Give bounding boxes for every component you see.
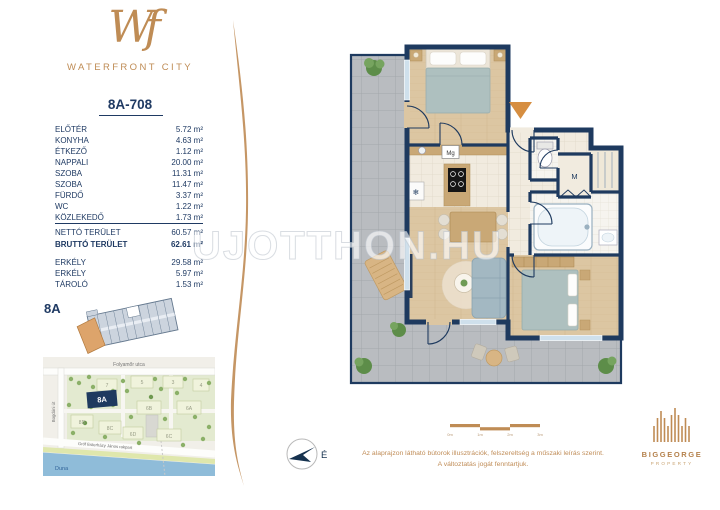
map-street-left-label: Bogdáni út — [51, 401, 56, 422]
room-name: KÖZLEKEDŐ — [55, 212, 104, 223]
extras-table: ERKÉLY29.58 m² ERKÉLY5.97 m² TÁROLÓ1.53 … — [55, 257, 203, 290]
table-row: SZOBA11.31 m² — [55, 168, 203, 179]
scale-labels: 0m 1m 2m 3m — [447, 432, 543, 437]
table-row: KÖZLEKEDŐ1.73 m² — [55, 212, 203, 223]
room-area-table: ELŐTÉR5.72 m² KONYHA4.63 m² ÉTKEZŐ1.12 m… — [55, 124, 203, 223]
toilet — [537, 142, 553, 149]
room-name: SZOBA — [55, 168, 82, 179]
disclaimer-line1: Az alaprajzon látható bútorok illusztrác… — [347, 449, 619, 460]
publisher-name: BIGGEORGE — [630, 450, 714, 459]
total-name: BRUTTÓ TERÜLET — [55, 239, 127, 251]
table-row: BRUTTÓ TERÜLET62.61 m² — [55, 239, 203, 251]
room-name: FÜRDŐ — [55, 190, 83, 201]
map-road-left — [58, 368, 64, 448]
entrance-arrow — [509, 102, 532, 119]
room-area: 1.22 m² — [176, 201, 203, 212]
keyplan-unit-label: 8A — [44, 301, 61, 316]
table-row: ERKÉLY29.58 m² — [55, 257, 203, 268]
floor-plan: Mg M ❄ — [344, 42, 626, 390]
svg-text:6C: 6C — [166, 434, 173, 440]
table-row: ÉTKEZŐ1.12 m² — [55, 146, 203, 157]
totals-table: NETTÓ TERÜLET60.57 m² BRUTTÓ TERÜLET62.6… — [55, 227, 203, 250]
svg-text:3: 3 — [172, 380, 175, 386]
map-street-top-label: Folyamőr utca — [113, 362, 145, 368]
building-keyplan — [74, 289, 192, 359]
svg-text:7: 7 — [106, 383, 109, 389]
svg-text:3m: 3m — [537, 432, 543, 437]
svg-text:5: 5 — [141, 380, 144, 386]
svg-text:6A: 6A — [186, 406, 193, 412]
map-parking — [146, 415, 158, 437]
builtin-wardrobe-floor — [591, 148, 621, 192]
extra-name: ERKÉLY — [55, 268, 86, 279]
disclaimer-line2: A változtatás jogát fenntartjuk. — [347, 460, 619, 471]
room-area: 11.47 m² — [172, 179, 203, 190]
table-row: ELŐTÉR5.72 m² — [55, 124, 203, 135]
wardrobe-label: M — [571, 172, 577, 181]
table-row: SZOBA11.47 m² — [55, 179, 203, 190]
unit-id: 8A-708 — [55, 97, 205, 112]
svg-text:6D: 6D — [130, 432, 137, 438]
room-name: ÉTKEZŐ — [55, 146, 87, 157]
north-label: É — [321, 450, 327, 461]
table-row: FÜRDŐ3.37 m² — [55, 190, 203, 201]
map-road-top — [43, 368, 215, 375]
kitchen-sink — [419, 147, 426, 154]
svg-text:1m: 1m — [477, 432, 483, 437]
north-compass: É — [284, 436, 334, 472]
room-name: WC — [55, 201, 68, 212]
fridge-icon: ❄ — [413, 188, 420, 197]
disclaimer: Az alaprajzon látható bútorok illusztrác… — [347, 449, 619, 470]
washing-machine-label: Mg — [446, 151, 454, 157]
keyplan-notch — [126, 306, 140, 318]
map-highlight-building: 8A — [86, 390, 117, 409]
map-river-label: Duna — [55, 466, 69, 472]
room-area: 1.73 m² — [176, 212, 203, 223]
brochure-page: Wf WATERFRONT CITY 8A-708 ELŐTÉR5.72 m² … — [0, 0, 720, 510]
svg-text:2m: 2m — [507, 432, 513, 437]
publisher-subtitle: PROPERTY — [630, 461, 714, 466]
publisher-towers-icon — [648, 402, 696, 444]
entry-door-opening — [510, 127, 534, 132]
room-area: 1.12 m² — [176, 146, 203, 157]
svg-text:4: 4 — [200, 383, 203, 389]
table-separator — [55, 223, 203, 224]
publisher-logo: BIGGEORGE PROPERTY — [630, 402, 714, 466]
svg-text:8C: 8C — [107, 426, 114, 432]
total-name: NETTÓ TERÜLET — [55, 227, 121, 239]
svg-text:8A: 8A — [97, 395, 108, 405]
room-name: KONYHA — [55, 135, 89, 146]
terrace-table — [486, 350, 502, 366]
room-area: 3.37 m² — [176, 190, 203, 201]
room-area: 4.63 m² — [176, 135, 203, 146]
table-row: NETTÓ TERÜLET60.57 m² — [55, 227, 203, 239]
room-name: SZOBA — [55, 179, 82, 190]
room-area: 5.72 m² — [176, 124, 203, 135]
unit-id-underline — [99, 115, 163, 116]
room-area: 11.31 m² — [172, 168, 203, 179]
terrace-door-opening — [426, 319, 452, 325]
room-area: 20.00 m² — [171, 157, 203, 168]
scale-bar: 0m 1m 2m 3m — [442, 419, 552, 439]
watermark: UJOTTHON.HU — [192, 224, 552, 269]
extra-area: 5.97 m² — [176, 268, 203, 279]
cooktop — [448, 168, 466, 192]
table-row: ERKÉLY5.97 m² — [55, 268, 203, 279]
brand-monogram-logo: Wf — [55, 2, 205, 54]
table-row: NAPPALI20.00 m² — [55, 157, 203, 168]
svg-text:8D: 8D — [79, 420, 86, 426]
room-name: ELŐTÉR — [55, 124, 87, 135]
svg-text:6B: 6B — [146, 406, 153, 412]
svg-text:0m: 0m — [447, 432, 453, 437]
table-row: WC1.22 m² — [55, 201, 203, 212]
table-row: KONYHA4.63 m² — [55, 135, 203, 146]
extra-name: ERKÉLY — [55, 257, 86, 268]
brand-name: WATERFRONT CITY — [45, 62, 215, 73]
location-map: Folyamőr utca Bogdáni út Gróf Esterházy … — [43, 357, 215, 476]
room-name: NAPPALI — [55, 157, 88, 168]
